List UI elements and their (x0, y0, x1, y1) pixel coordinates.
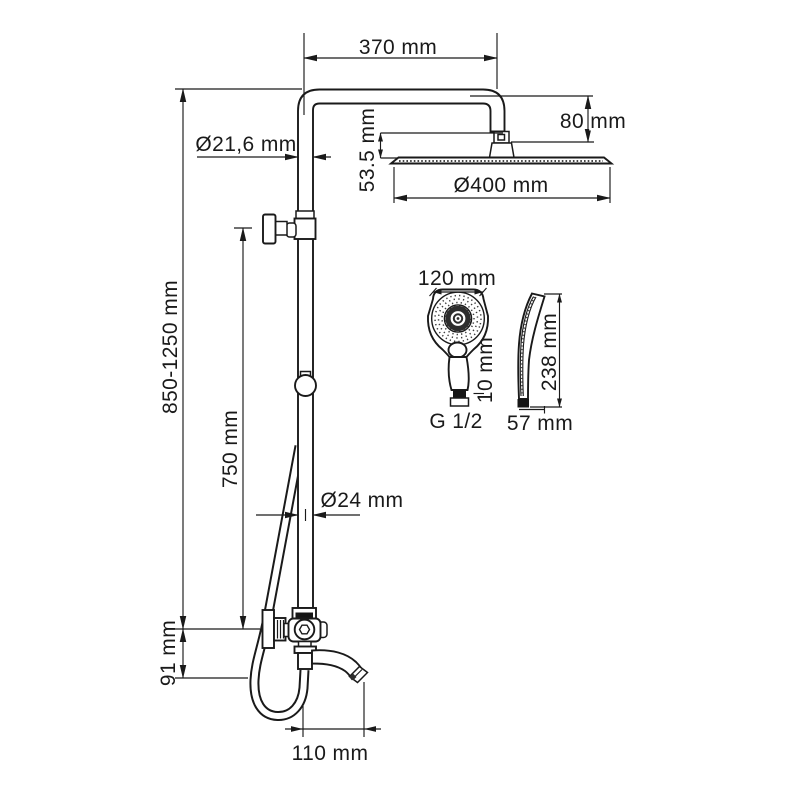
handshower-boss-dot (457, 317, 460, 320)
knob-disc (263, 215, 276, 244)
dim-mixer-height (175, 629, 248, 678)
label-arm-length: 370 mm (359, 36, 437, 59)
tee-collar (296, 211, 314, 219)
arrowhead (291, 726, 303, 732)
handshower-mode-button (449, 343, 467, 358)
label-head-height: 53.5 mm (356, 108, 379, 193)
dim-head-height (381, 133, 504, 158)
rain-shower-head (391, 158, 612, 164)
rain-head-connector (490, 132, 515, 158)
handle-plate (263, 610, 275, 648)
label-handshower-depth: 57 mm (507, 412, 573, 435)
arrowhead (364, 726, 376, 732)
spout-base (298, 653, 312, 669)
label-column-height: 850-1250 mm (159, 280, 182, 414)
label-head-drop: 80 mm (560, 110, 626, 133)
handshower-handle (449, 357, 469, 390)
label-spout-reach: 110 mm (292, 742, 369, 765)
hose-outer (254, 446, 304, 716)
shower-hose (254, 446, 304, 716)
rain-head-disc (391, 158, 612, 164)
label-pipe-diameter-bottom: Ø24 mm (321, 489, 404, 512)
slider-body (295, 375, 316, 396)
handshower-thread-nut (453, 390, 466, 398)
label-thread-length: 10 mm (474, 337, 497, 403)
label-mixer-height: 91 mm (157, 620, 180, 686)
connector-base (490, 143, 515, 158)
label-handshower-length: 238 mm (538, 313, 561, 391)
tee-body (295, 219, 316, 240)
label-pipe-diameter-top: Ø21,6 mm (195, 133, 296, 156)
diverter-knob-assembly (263, 211, 316, 244)
mixer-assembly (263, 608, 368, 683)
knob-stem (275, 222, 287, 236)
label-upper-section: 750 mm (219, 410, 242, 488)
drawing-page: 370 mm 80 mm Ø21,6 mm 53.5 mm Ø400 mm 85… (0, 0, 800, 800)
handshower-side-nut (518, 399, 530, 408)
technical-drawing-canvas: 370 mm 80 mm Ø21,6 mm 53.5 mm Ø400 mm 85… (0, 0, 800, 800)
dimension-labels: 370 mm 80 mm Ø21,6 mm 53.5 mm Ø400 mm 85… (157, 36, 626, 765)
valve-face (295, 620, 315, 640)
knob-ferrule (287, 223, 297, 237)
label-handshower-width: 120 mm (418, 267, 496, 290)
label-head-diameter: Ø400 mm (454, 174, 549, 197)
handshower-flange (451, 398, 469, 406)
label-connection-size: G 1/2 (429, 410, 482, 433)
connector-nut-inner (498, 135, 505, 141)
